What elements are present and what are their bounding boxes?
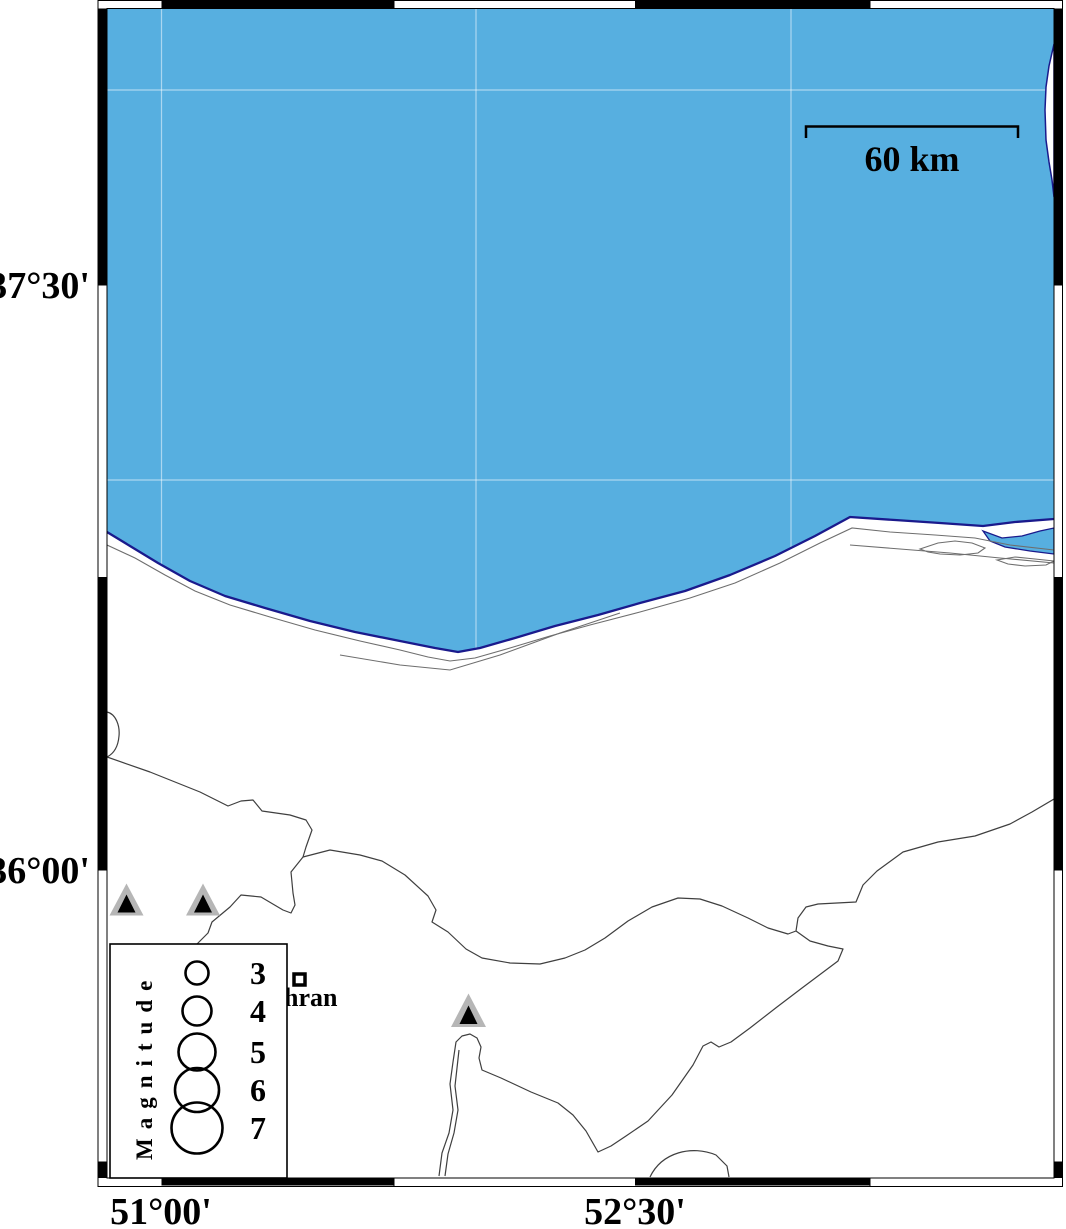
city-label: hran	[284, 983, 338, 1012]
legend-title: Magnitude	[132, 972, 157, 1160]
bay-polygon	[983, 528, 1054, 554]
magnitude-value: 3	[250, 955, 266, 991]
lon-label-5100: 51°00'	[110, 1191, 212, 1229]
map-svg: 60 km	[0, 0, 1066, 1229]
boundary-west	[107, 712, 312, 953]
sea-polygon	[107, 9, 1054, 653]
magnitude-value: 6	[250, 1072, 266, 1108]
volcano-marker	[451, 994, 486, 1028]
lon-label-5230: 52°30'	[584, 1191, 686, 1229]
volcano-marker	[110, 884, 144, 916]
volcano-marker	[186, 884, 220, 916]
scale-bar-label: 60 km	[864, 139, 959, 179]
south-arc	[650, 1151, 729, 1177]
lat-label-3730: 37°30'	[0, 265, 90, 307]
magnitude-value: 5	[250, 1034, 266, 1070]
magnitude-legend: Magnitude 3 4 5 6 7	[110, 944, 287, 1178]
boundary-east	[303, 799, 1054, 964]
boundary-south	[439, 931, 843, 1176]
map-figure: 60 km	[0, 0, 1066, 1229]
lat-label-3600: 36°00'	[0, 850, 90, 892]
magnitude-value: 7	[250, 1110, 266, 1146]
magnitude-value: 4	[250, 993, 266, 1029]
